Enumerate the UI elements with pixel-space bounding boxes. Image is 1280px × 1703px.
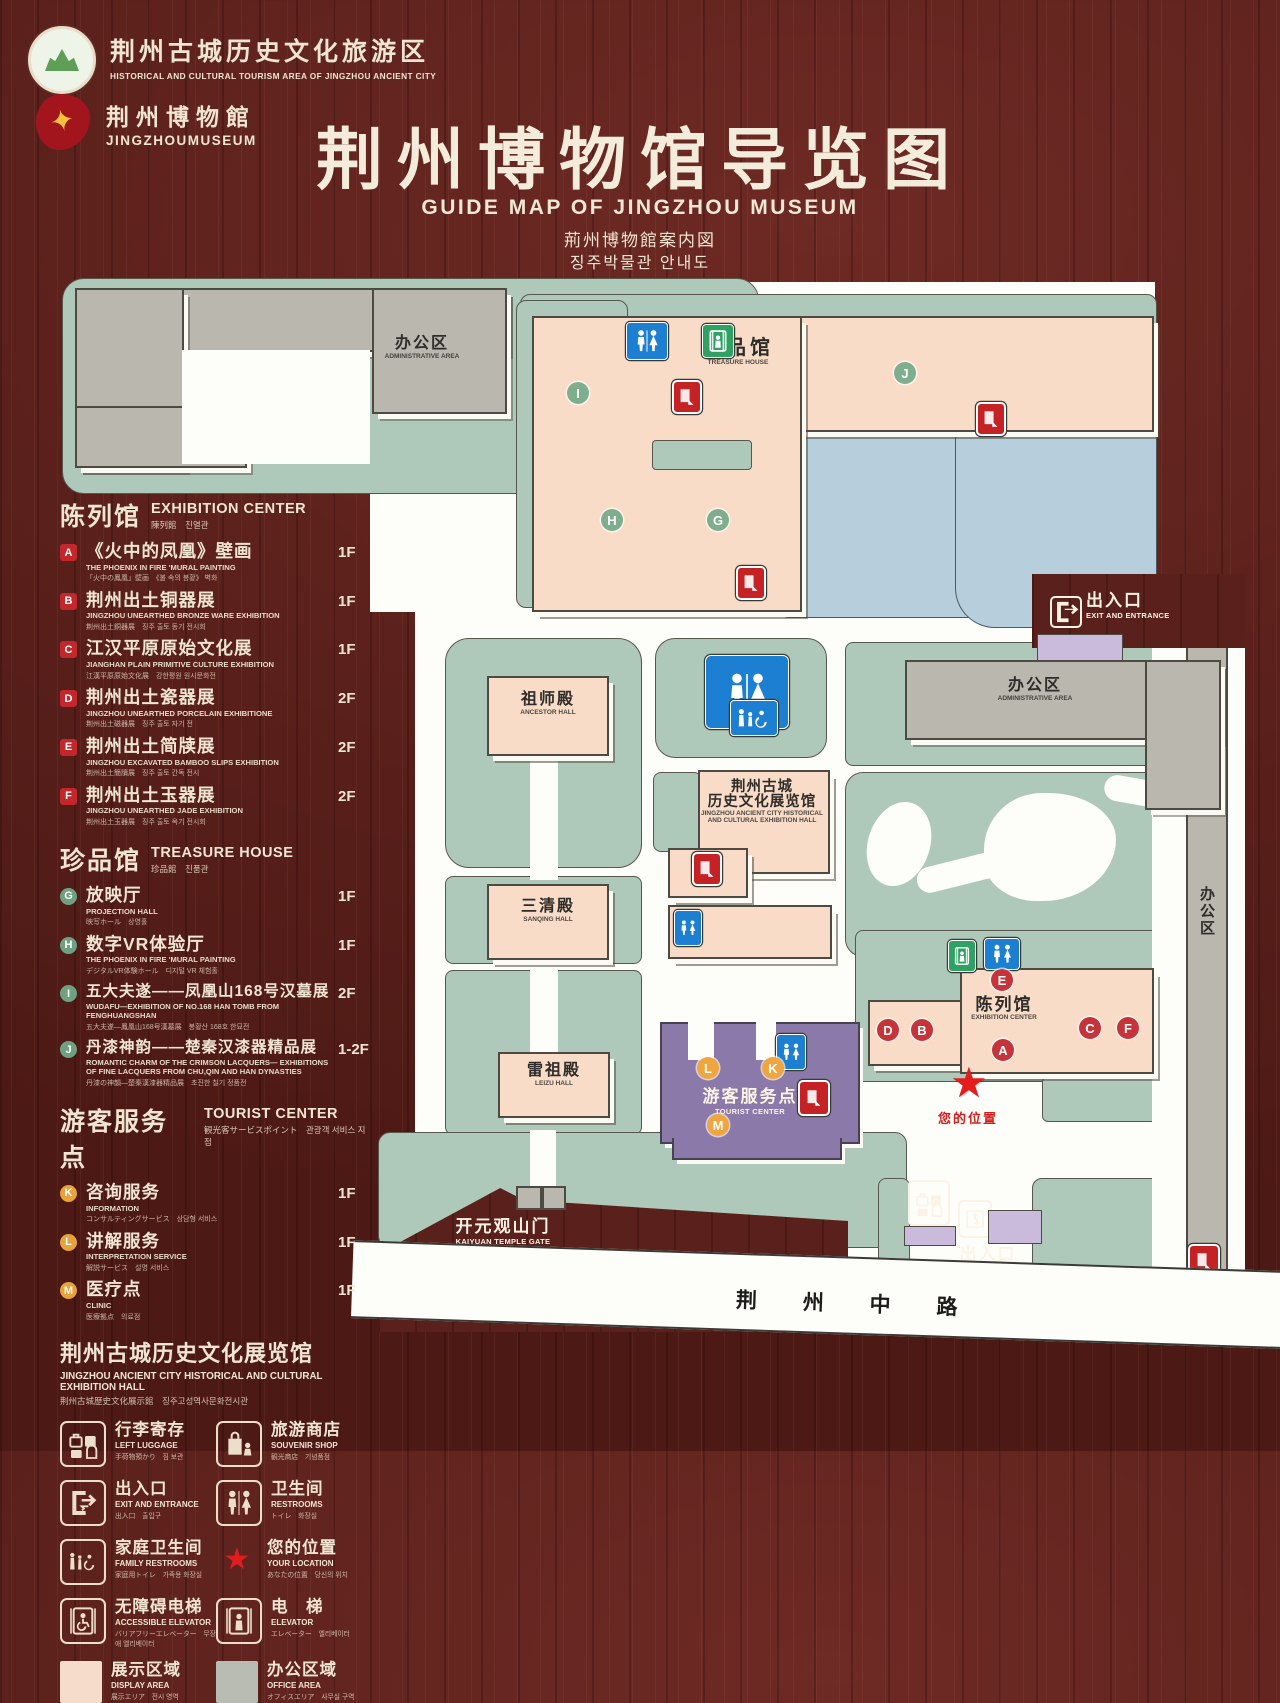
restrooms-exhibition-icon: [984, 938, 1020, 970]
map-badge-c: C: [1079, 1017, 1101, 1039]
map-badge-m: M: [707, 1114, 729, 1136]
your-location-icon: ★: [224, 1545, 251, 1575]
exhibition-center-label: 陈列馆 EXHIBITION CENTER: [942, 996, 1066, 1022]
admin-east-label: 办公区 ADMINISTRATIVE AREA: [975, 678, 1095, 703]
badge-l: L: [60, 1234, 77, 1251]
page-subtitle-ja: 荊州博物館案内図: [564, 226, 716, 251]
badge-j: J: [60, 1041, 77, 1058]
tourism-logo-title: 荆州古城历史文化旅游区: [110, 32, 436, 68]
badge-b: B: [60, 593, 77, 610]
kaiyuan-gate-pier-1: [516, 1186, 542, 1210]
legend-item-h: H 数字VR体验厅THE PHOENIX IN FIRE 'MURAL PAIN…: [60, 935, 372, 976]
badge-k: K: [60, 1185, 77, 1202]
tourist-center-base: [672, 1138, 842, 1160]
badge-e: E: [60, 739, 77, 756]
facility-souvenir-shop: 旅游商店SOUVENIR SHOP観光商店 기념품점: [216, 1421, 372, 1467]
page-subtitle-ko: 징주박물관 안내도: [570, 249, 710, 273]
facility-your-location: ★ 您的位置YOUR LOCATIONあなたの位置 당신의 위치: [216, 1539, 372, 1585]
museum-logo: ✦ 荆州博物館 JINGZHOUMUSEUM: [36, 94, 257, 150]
badge-g: G: [60, 888, 77, 905]
treasure-inner-court: [652, 440, 752, 470]
map-badge-f: F: [1117, 1017, 1139, 1039]
tourist-notch-2: [756, 1020, 776, 1060]
legend-item-k: K 咨询服务INFORMATIONコンサルティングサービス 상담형 서비스 1F: [60, 1183, 372, 1224]
legend-panel: 陈列馆 EXHIBITION CENTER 陳列館 진열관 A 《火中的凤凰》壁…: [60, 497, 372, 1703]
museum-logo-subtitle: JINGZHOUMUSEUM: [106, 133, 257, 148]
legend-item-c: C 江汉平原原始文化展JIANGHAN PLAIN PRIMITIVE CULT…: [60, 639, 372, 680]
map-badge-b: B: [911, 1019, 933, 1041]
legend-item-g: G 放映厅PROJECTION HALL映写ホール 상영홀 1F: [60, 886, 372, 927]
garden-path-south: [914, 848, 1008, 895]
history-hall-label: 荆州古城 历史文化展览馆 JINGZHOU ANCIENT CITY HISTO…: [700, 780, 824, 825]
legend-item-m: M 医疗点CLINIC医療拠点 의료점 1F: [60, 1280, 372, 1321]
accessible-elevator-icon: [60, 1598, 106, 1644]
exit-entrance-ne-icon: [1050, 596, 1082, 628]
your-location-star-icon: ★: [950, 1062, 988, 1104]
section-title-zh: 陈列馆: [60, 497, 141, 533]
tourism-emblem-icon: [28, 26, 96, 94]
gate-s2: [988, 1210, 1042, 1244]
facility-family-restrooms: 家庭卫生间FAMILY RESTROOMS家庭用トイレ 가족용 화장실: [60, 1539, 216, 1585]
badge-m: M: [60, 1282, 77, 1299]
path-ancestor-sanqing: [530, 758, 558, 880]
facility-display-area: 展示区域DISPLAY AREA展示エリア 전시 영역: [60, 1661, 216, 1703]
facility-exit-entrance: 出入口EXIT AND ENTRANCE出入口 출입구: [60, 1480, 216, 1526]
admin-east-wing: [1145, 660, 1221, 810]
legend-item-d: D 荆州出土瓷器展JINGZHOU UNEARTHED PORCELAIN EX…: [60, 688, 372, 729]
legend-section-exhibition-center: 陈列馆 EXHIBITION CENTER 陳列館 진열관 A 《火中的凤凰》壁…: [60, 497, 372, 827]
phoenix-icon: ✦: [36, 94, 90, 150]
facility-red-treasure3-icon: [736, 566, 766, 600]
sanqing-hall-building: 三清殿 SANQING HALL: [487, 884, 609, 960]
admin-nw-courtyard: [182, 350, 370, 464]
map-badge-a: A: [992, 1039, 1014, 1061]
museum-logo-title: 荆州博物館: [106, 98, 257, 132]
facility-red-treasure1-icon: [672, 380, 702, 414]
souvenir-shop-icon: [216, 1421, 262, 1467]
ancestor-hall-label: 祖师殿 ANCESTOR HALL: [489, 692, 607, 717]
kaiyuan-gate-label: 开元观山门 KAIYUAN TEMPLE GATE: [428, 1218, 578, 1246]
green-tab-history-hall: [653, 772, 702, 852]
badge-d: D: [60, 690, 77, 707]
tourist-notch-1: [688, 1020, 714, 1060]
facility-office-area: 办公区域OFFICE AREAオフィスエリア 사무실 구역: [216, 1661, 372, 1703]
garden-pond: [984, 793, 1116, 901]
section-title-en: EXHIBITION CENTER: [151, 497, 306, 517]
map-badge-k: K: [762, 1057, 784, 1079]
map-badge-d: D: [877, 1019, 899, 1041]
restrooms-icon: [216, 1480, 262, 1526]
exit-entrance-icon: [60, 1480, 106, 1526]
badge-h: H: [60, 937, 77, 954]
legend-item-f: F 荆州出土玉器展JINGZHOU UNEARTHED JADE EXHIBIT…: [60, 786, 372, 827]
treasure-house-label: 珍品馆 TREASURE HOUSE: [668, 338, 808, 367]
admin-nw-label: 办公区 ADMINISTRATIVE AREA: [362, 336, 482, 361]
office-area-swatch: [216, 1661, 258, 1703]
family-restrooms-icon: [60, 1539, 106, 1585]
facility-left-luggage: 行李寄存LEFT LUGGAGE手荷物預かり 짐 보관: [60, 1421, 216, 1467]
map-badge-e: E: [991, 969, 1013, 991]
facility-red-treasure2-icon: [976, 402, 1006, 436]
legend-item-l: L 讲解服务INTERPRETATION SERVICE解説サービス 설명 서비…: [60, 1232, 372, 1273]
map-badge-j: J: [894, 362, 916, 384]
facility-accessible-elevator: 无障碍电梯ACCESSIBLE ELEVATORバリアフリーエレベーター 무장애…: [60, 1598, 216, 1648]
restrooms-history-icon: [674, 910, 702, 946]
display-area-swatch: [60, 1661, 102, 1703]
elevator-treasure-icon: [702, 324, 734, 358]
section-title-sub: 陳列館 진열관: [151, 519, 306, 531]
left-luggage-icon: [60, 1421, 106, 1467]
badge-i: I: [60, 985, 77, 1002]
facility-elevator: 电 梯ELEVATORエレベーター 엘리베이터: [216, 1598, 372, 1648]
legend-section-tourist-center: 游客服务点 TOURIST CENTER 観光客サービスポイント 관광객 서비스…: [60, 1102, 372, 1322]
your-location-label: 您的位置: [938, 1108, 998, 1127]
facilities-legend: 行李寄存LEFT LUGGAGE手荷物預かり 짐 보관 旅游商店SOUVENIR…: [60, 1421, 372, 1703]
legend-section-treasure-house: 珍品馆 TREASURE HOUSE 珍品館 진품관 G 放映厅PROJECTI…: [60, 841, 372, 1088]
history-hall-note: 荆州古城历史文化展览馆 JINGZHOU ANCIENT CITY HISTOR…: [60, 1336, 372, 1407]
kaiyuan-gate-pier-2: [542, 1186, 566, 1210]
facility-restrooms: 卫生间RESTROOMSトイレ 화장실: [216, 1480, 372, 1526]
exit-entrance-s-icon: [958, 1200, 992, 1238]
leizu-hall-label: 雷祖殿 LEIZU HALL: [500, 1063, 608, 1088]
legend-item-i: I 五大夫遂——凤凰山168号汉墓展WUDAFU—EXHIBITION OF N…: [60, 983, 372, 1032]
badge-c: C: [60, 641, 77, 658]
family-restrooms-mid-icon: [730, 700, 778, 736]
badge-a: A: [60, 544, 77, 561]
restrooms-treasure-icon: [626, 322, 668, 360]
page-title: 荆州博物馆导览图: [316, 106, 964, 203]
badge-f: F: [60, 788, 77, 805]
map-badge-i: I: [567, 382, 589, 404]
path-sanqing-leizu: [530, 960, 558, 1060]
page-subtitle-en: GUIDE MAP OF JINGZHOU MUSEUM: [421, 196, 858, 220]
elevator-icon: [216, 1598, 262, 1644]
legend-item-b: B 荆州出土铜器展JINGZHOU UNEARTHED BRONZE WARE …: [60, 591, 372, 632]
tourism-logo-subtitle: HISTORICAL AND CULTURAL TOURISM AREA OF …: [110, 71, 436, 81]
legend-item-e: E 荆州出土简牍展JINGZHOU EXCAVATED BAMBOO SLIPS…: [60, 737, 372, 778]
exit-ne-label: 出入口 EXIT AND ENTRANCE: [1086, 592, 1206, 620]
sanqing-hall-label: 三清殿 SANQING HALL: [489, 899, 607, 924]
facility-red-history-icon: [692, 852, 722, 886]
legend-item-j: J 丹漆神韵——楚秦汉漆器精品展ROMANTIC CHARM OF THE CR…: [60, 1039, 372, 1088]
map-badge-h: H: [601, 509, 623, 531]
ancestor-hall-building: 祖师殿 ANCESTOR HALL: [487, 676, 609, 756]
facility-red-tourist-icon: [798, 1080, 830, 1116]
gate-s1: [904, 1226, 956, 1246]
legend-item-a: A 《火中的凤凰》壁画THE PHOENIX IN FIRE 'MURAL PA…: [60, 542, 372, 583]
tourism-area-logo: 荆州古城历史文化旅游区 HISTORICAL AND CULTURAL TOUR…: [28, 26, 436, 94]
map-badge-l: L: [697, 1057, 719, 1079]
leizu-hall-building: 雷祖殿 LEIZU HALL: [498, 1052, 610, 1118]
elevator-exhibition-icon: [948, 940, 976, 972]
admin-strip-label: 办公区: [1196, 886, 1217, 937]
map-badge-g: G: [707, 509, 729, 531]
left-luggage-map-icon: [908, 1180, 950, 1226]
